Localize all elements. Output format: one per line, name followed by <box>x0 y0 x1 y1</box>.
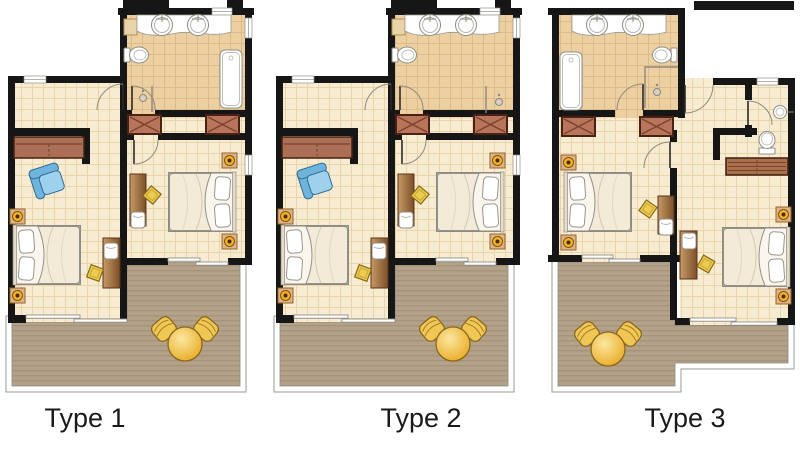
closet <box>640 117 673 136</box>
toilet <box>124 47 149 63</box>
nightstand-lamp <box>10 209 25 224</box>
bath-cabinet <box>392 19 405 35</box>
double-sink-counter <box>572 14 666 36</box>
desk-chair <box>131 212 145 228</box>
double-bed <box>564 172 631 232</box>
plan-label-type-1: Type 1 <box>44 403 125 433</box>
double-sink-counter <box>137 14 231 36</box>
bathtub <box>560 52 582 110</box>
floor-plan-type-2: Type 2 <box>274 0 522 433</box>
plan-label-type-2: Type 2 <box>380 403 461 433</box>
toilet <box>392 47 417 63</box>
nightstand-lamp <box>776 289 791 304</box>
nightstand-lamp <box>278 209 293 224</box>
double-sink-counter <box>405 14 499 36</box>
toilet <box>759 132 775 155</box>
wardrobe <box>726 158 788 175</box>
nightstand-lamp <box>278 288 293 303</box>
closet <box>206 115 239 134</box>
desk-chair <box>682 233 696 249</box>
double-bed <box>169 172 236 232</box>
double-bed <box>723 227 790 287</box>
toilet <box>653 47 678 63</box>
desk-chair <box>399 212 413 228</box>
sofa <box>14 137 84 158</box>
plan-label-type-3: Type 3 <box>644 403 725 433</box>
double-bed <box>281 225 348 285</box>
nightstand-lamp <box>776 207 791 222</box>
floor-plans-sheet: Type 1 <box>0 0 800 450</box>
double-bed <box>13 225 80 285</box>
nightstand-lamp <box>490 234 505 249</box>
nightstand-lamp <box>10 288 25 303</box>
desk-chair <box>104 243 118 259</box>
window <box>757 78 778 85</box>
nightstand-lamp <box>222 153 237 168</box>
floor-plan-type-1: Type 1 <box>6 0 254 433</box>
floor-plans-canvas: Type 1 <box>0 0 800 450</box>
bath-cabinet <box>124 19 137 35</box>
double-bed <box>437 172 504 232</box>
nightstand-lamp <box>561 155 576 170</box>
closet <box>474 115 507 134</box>
closet <box>128 115 161 134</box>
nightstand-lamp <box>490 153 505 168</box>
floor-plan-type-3: Type 3 <box>548 1 795 433</box>
bathtub <box>220 50 242 108</box>
nightstand-lamp <box>222 234 237 249</box>
closet <box>396 115 429 134</box>
wc-sink <box>774 106 787 119</box>
sofa <box>282 137 352 158</box>
closet <box>562 117 595 136</box>
desk-chair <box>372 243 386 259</box>
desk-chair <box>659 219 673 235</box>
nightstand-lamp <box>561 235 576 250</box>
